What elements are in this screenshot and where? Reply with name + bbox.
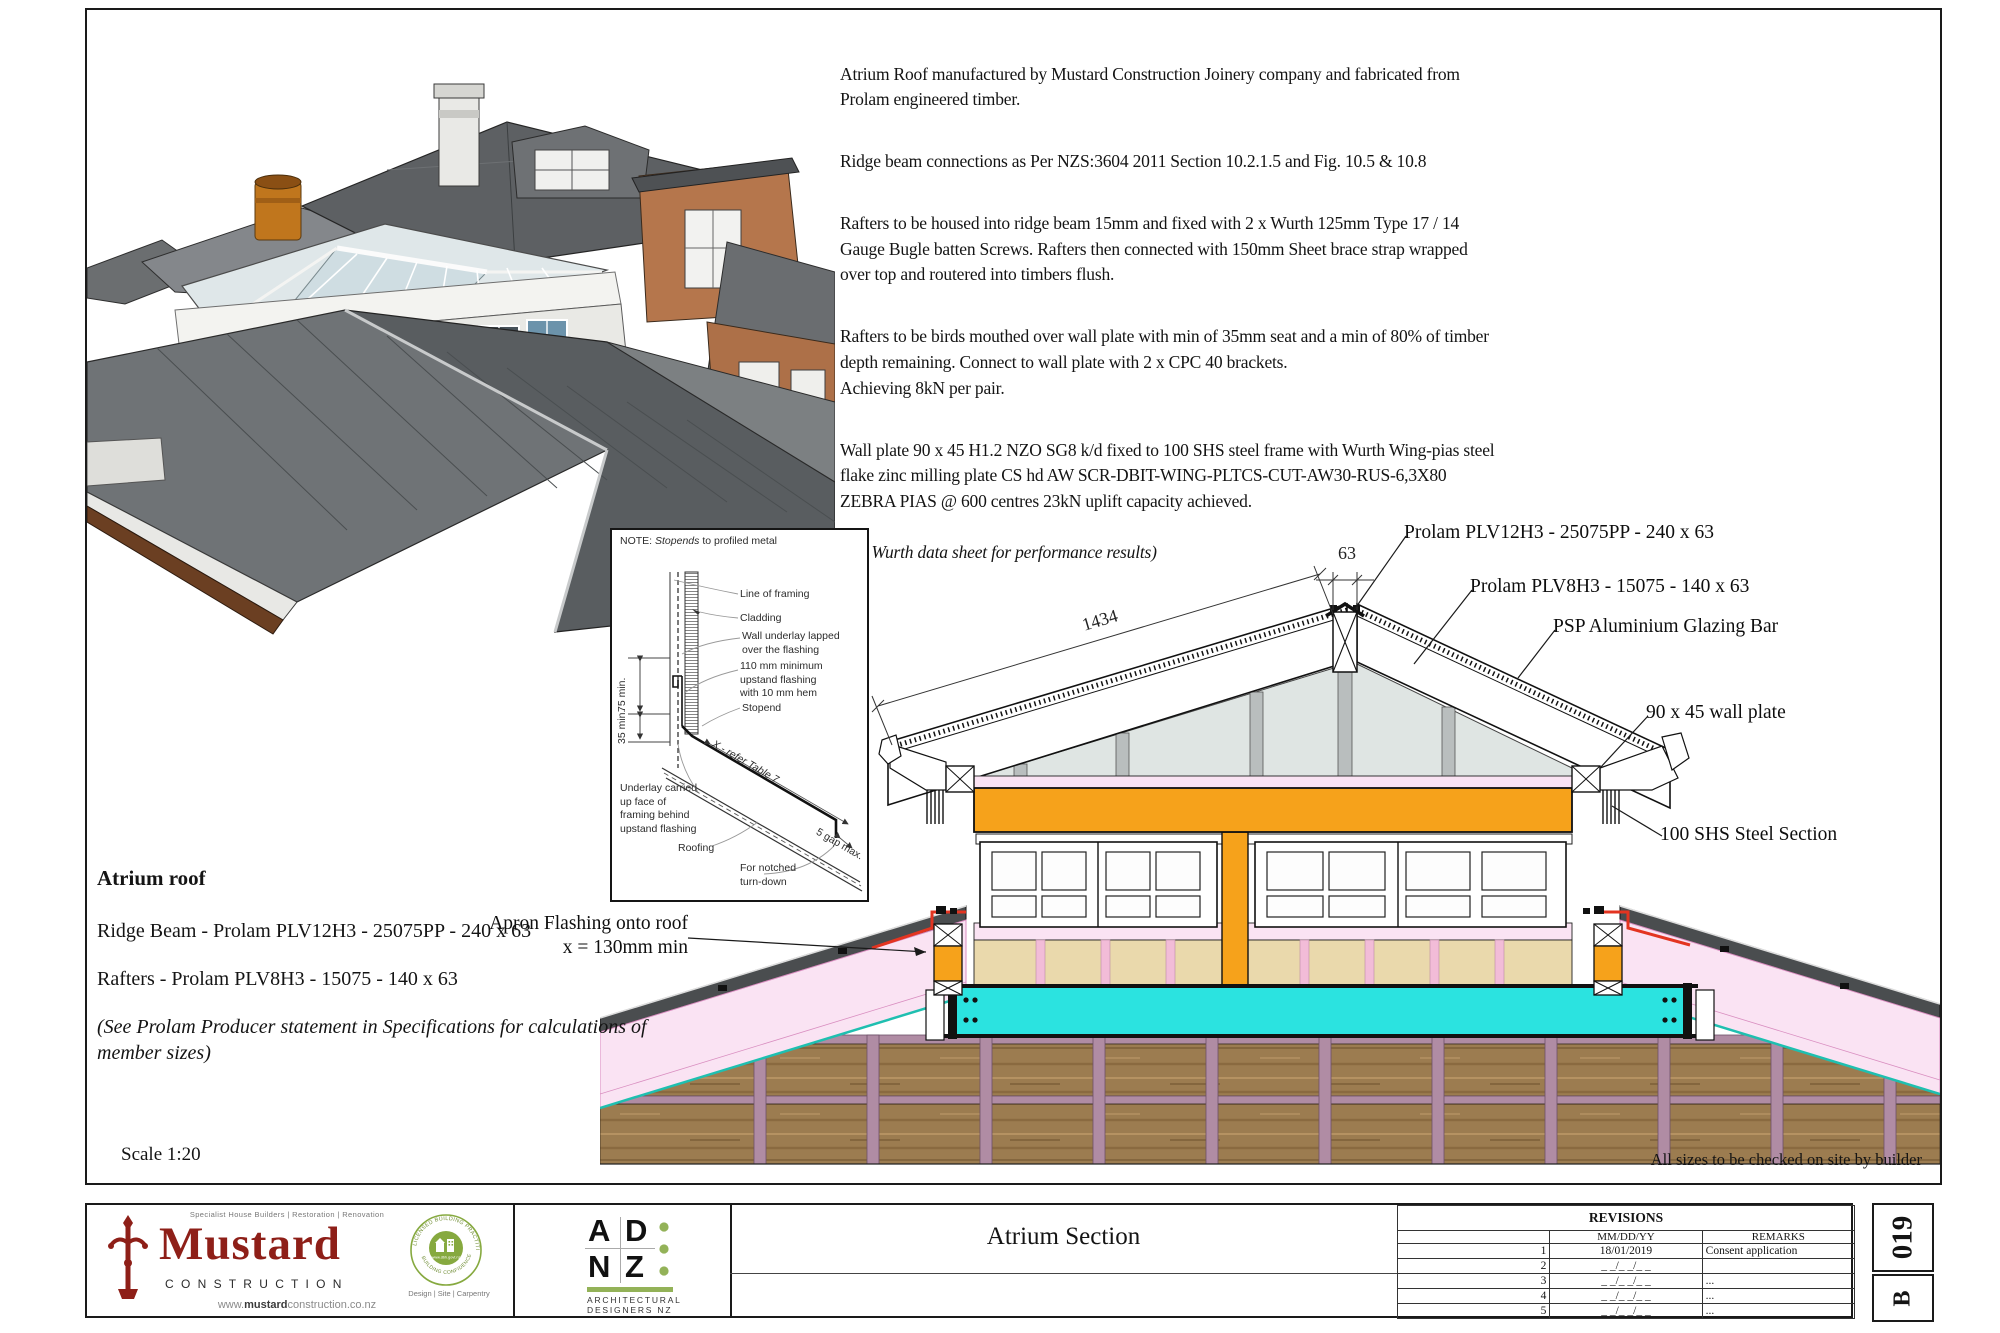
revision-row-num: 2 [1398,1259,1550,1274]
website-suffix: construction.co.nz [288,1299,377,1311]
drawing-title-panel: Atrium Section [730,1205,1397,1316]
revision-row-remarks: ... [1702,1304,1854,1319]
schedule-note: (See Prolam Producer statement in Specif… [97,1014,647,1066]
drawing-sheet: Atrium Roof manufactured by Mustard Cons… [0,0,2000,1333]
drawing-title: Atrium Section [730,1223,1397,1251]
spec-paragraph-ridge-connections: Ridge beam connections as Per NZS:3604 2… [840,149,1610,175]
mustard-fleur-icon [105,1215,151,1307]
revision-row-date: _ _/_ _/_ _ [1550,1289,1702,1304]
schedule-ridge-beam: Ridge Beam - Prolam PLV12H3 - 25075PP - … [97,920,531,943]
mustard-wordmark: Mustard [159,1217,341,1271]
revision-row-date: 18/01/2019 [1550,1244,1702,1259]
right-outer-post [1583,906,1622,995]
title-block: Specialist House Builders | Restoration … [85,1203,1853,1318]
revision-row-remarks [1702,1259,1854,1274]
schedule-heading: Atrium roof [97,866,206,891]
spec-paragraph-manufacture: Atrium Roof manufactured by Mustard Cons… [840,62,1610,113]
revisions-col-remarks: REMARKS [1702,1231,1854,1244]
revision-letter-box: B [1872,1274,1934,1322]
revisions-panel: REVISIONS MM/DD/YY REMARKS 1 18/01/2019 … [1397,1205,1855,1316]
mustard-logo-panel: Specialist House Builders | Restoration … [87,1205,513,1316]
revisions-header: REVISIONS [1398,1206,1855,1231]
revisions-col-date: MM/DD/YY [1550,1231,1702,1244]
revision-row-date: _ _/_ _/_ _ [1550,1274,1702,1289]
adnz-letter-a: A [588,1213,610,1249]
schedule-rafters: Rafters - Prolam PLV8H3 - 15075 - 140 x … [97,968,458,991]
scale-note: Scale 1:20 [121,1144,201,1166]
revision-row-remarks: ... [1702,1289,1854,1304]
adnz-letter-d: D [625,1213,647,1249]
sheet-number: 019 [1887,1216,1920,1260]
website-bold: mustard [244,1299,287,1311]
sizes-check-note: All sizes to be checked on site by build… [1540,1150,1922,1170]
revision-row-num: 1 [1398,1244,1550,1259]
mustard-services: Design | Site | Carpentry [399,1289,499,1298]
dimension-63: 63 [1315,543,1379,564]
label-wall-plate: 90 x 45 wall plate [1646,702,1786,724]
adnz-architectural: ARCHITECTURAL [587,1295,682,1305]
adnz-designers: DESIGNERS NZ [587,1305,672,1315]
label-rafter: Prolam PLV8H3 - 15075 - 140 x 63 [1470,576,1749,598]
revision-row-num: 3 [1398,1274,1550,1289]
mustard-construction-word: C O N S T R U C T I O N [165,1277,343,1291]
adnz-logo-panel: A D N Z ARCHITECTURAL DESIGNERS NZ [513,1205,730,1316]
revision-letter: B [1889,1290,1916,1306]
revision-row-date: _ _/_ _/_ _ [1550,1259,1702,1274]
revision-row-remarks: ... [1702,1274,1854,1289]
adnz-letter-z: Z [625,1249,644,1285]
badge-url-text: www.dbh.govt.nz [432,1256,461,1260]
sheet-number-box: 019 [1872,1203,1934,1272]
spec-paragraph-birdsmouth: Rafters to be birds mouthed over wall pl… [840,324,1610,401]
atrium-section-drawing [600,438,1940,1183]
adnz-letter-n: N [588,1249,610,1285]
revision-row-num: 4 [1398,1289,1550,1304]
window-right-group [1255,842,1566,927]
lbp-badge-icon: LICENSED BUILDING PRACTITIONER BUILDING … [409,1213,483,1287]
label-ridge-beam: Prolam PLV12H3 - 25075PP - 240 x 63 [1404,522,1714,544]
label-glazing-bar: PSP Aluminium Glazing Bar [1553,616,1778,638]
revision-row-date: _ _/_ _/_ _ [1550,1304,1702,1319]
revision-row-num: 5 [1398,1304,1550,1319]
label-shs-steel: 100 SHS Steel Section [1660,824,1837,846]
window-left-group [980,842,1217,927]
adnz-dots-icon [656,1219,672,1281]
revision-row-remarks: Consent application [1702,1244,1854,1259]
website-prefix: www. [218,1299,244,1311]
spec-paragraph-rafter-fixing: Rafters to be housed into ridge beam 15m… [840,211,1610,288]
mustard-website: www.mustardconstruction.co.nz [147,1299,447,1311]
